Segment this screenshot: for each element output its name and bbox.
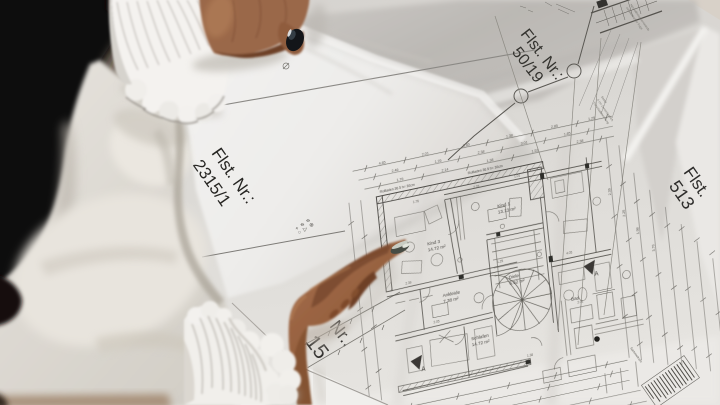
svg-text:1.98: 1.98: [636, 227, 641, 235]
svg-text:A: A: [421, 366, 426, 373]
svg-text:3.70: 3.70: [651, 244, 656, 252]
svg-text:2.26: 2.26: [622, 209, 627, 217]
svg-text:A: A: [594, 271, 599, 278]
svg-text:2.39: 2.39: [607, 188, 612, 196]
